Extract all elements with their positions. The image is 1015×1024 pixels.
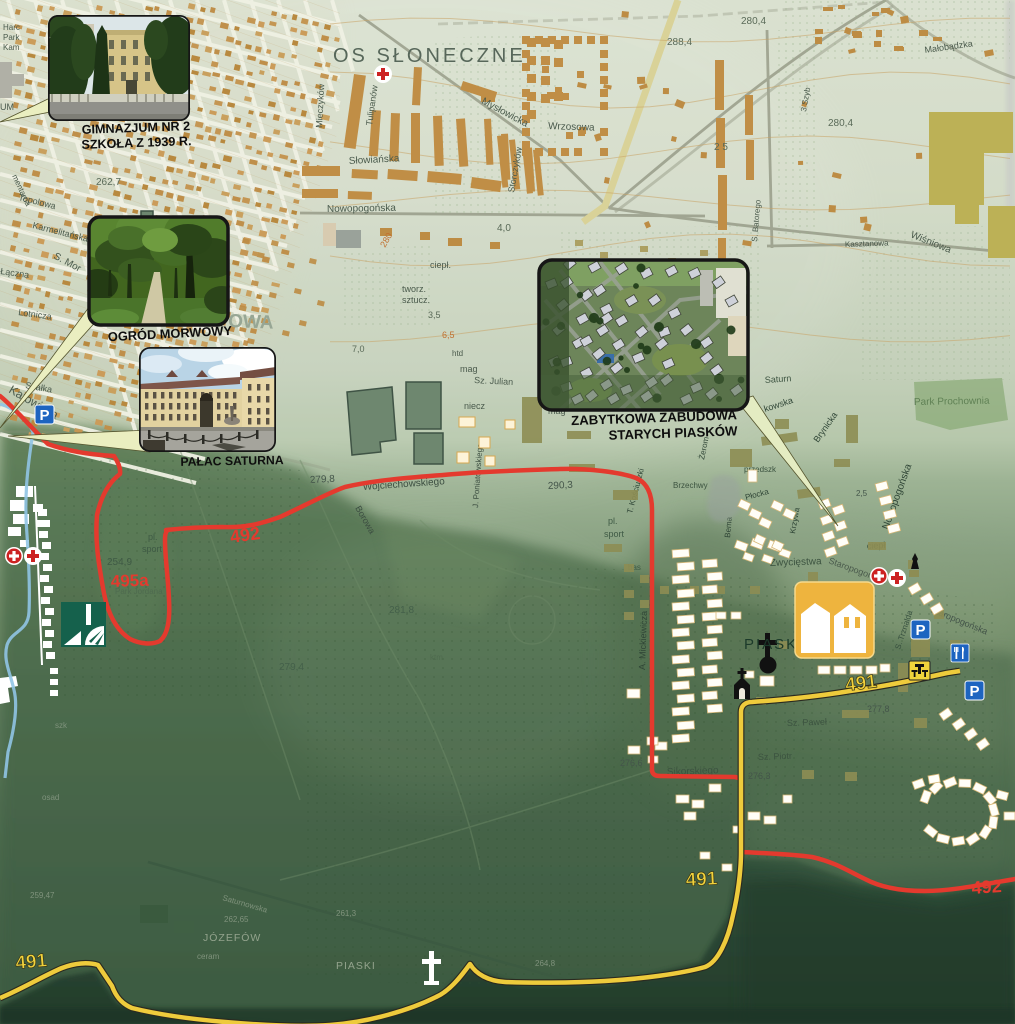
svg-text:PIASKI: PIASKI	[336, 960, 376, 972]
svg-text:264,8: 264,8	[535, 959, 556, 968]
svg-text:Harc: Harc	[3, 23, 20, 32]
svg-text:3,5: 3,5	[428, 310, 441, 320]
svg-text:ceram: ceram	[197, 952, 220, 961]
svg-text:Wrzosowa: Wrzosowa	[548, 121, 595, 134]
svg-text:262,65: 262,65	[224, 915, 249, 924]
svg-text:ktm: ktm	[430, 653, 443, 662]
svg-text:Sz. Paweł: Sz. Paweł	[787, 717, 827, 728]
svg-text:491: 491	[844, 671, 878, 696]
svg-text:7,0: 7,0	[352, 344, 365, 354]
svg-text:Park: Park	[3, 33, 20, 42]
svg-text:491: 491	[15, 950, 49, 974]
svg-text:sztucz.: sztucz.	[402, 295, 430, 305]
svg-text:niecz: niecz	[464, 401, 486, 411]
svg-text:259,47: 259,47	[30, 891, 55, 900]
svg-text:254,9: 254,9	[107, 557, 132, 568]
svg-text:P: P	[969, 683, 979, 700]
svg-text:tworz.: tworz.	[402, 284, 426, 294]
svg-text:sport: sport	[604, 529, 625, 539]
svg-text:P: P	[915, 622, 925, 639]
svg-text:492: 492	[971, 876, 1002, 898]
svg-text:276,6: 276,6	[620, 758, 643, 768]
svg-text:Nowopogońska: Nowopogońska	[327, 203, 397, 215]
svg-text:mag: mag	[460, 364, 478, 374]
svg-text:A. Mickiewicza: A. Mickiewicza	[637, 611, 649, 670]
svg-text:UM: UM	[0, 102, 14, 112]
svg-text:2 5: 2 5	[714, 142, 728, 153]
svg-text:Brzechwy: Brzechwy	[673, 481, 708, 490]
svg-text:ciepł.: ciepł.	[430, 260, 451, 270]
svg-text:280,4: 280,4	[741, 16, 766, 27]
svg-text:Kasztanowa: Kasztanowa	[845, 238, 889, 249]
svg-text:JÓZEFÓW: JÓZEFÓW	[203, 931, 261, 944]
svg-text:262,7: 262,7	[96, 177, 121, 188]
svg-text:6,5: 6,5	[442, 330, 455, 340]
svg-text:Saturn: Saturn	[764, 373, 791, 385]
svg-text:OWA: OWA	[228, 311, 274, 334]
svg-text:Sz. Piotr: Sz. Piotr	[758, 751, 792, 762]
svg-text:276,3: 276,3	[748, 771, 771, 781]
svg-text:PAŁAC SATURNA: PAŁAC SATURNA	[180, 453, 284, 469]
svg-text:492: 492	[229, 523, 262, 547]
svg-text:279,4: 279,4	[279, 662, 304, 673]
svg-text:495a: 495a	[110, 571, 149, 591]
svg-text:281,8: 281,8	[389, 605, 414, 616]
svg-text:P: P	[39, 407, 49, 424]
svg-text:279,8: 279,8	[310, 474, 336, 486]
svg-text:277,8: 277,8	[867, 704, 890, 714]
svg-text:htd: htd	[452, 349, 463, 358]
svg-text:491: 491	[685, 868, 718, 891]
svg-text:4,0: 4,0	[497, 223, 511, 234]
svg-text:pl.: pl.	[608, 516, 618, 526]
svg-text:288,4: 288,4	[667, 37, 692, 48]
svg-text:280,4: 280,4	[828, 118, 853, 129]
svg-text:2,5: 2,5	[856, 489, 868, 498]
svg-text:sport: sport	[142, 544, 163, 554]
svg-text:261,3: 261,3	[336, 909, 357, 918]
svg-text:pl.: pl.	[148, 532, 158, 542]
svg-text:osad: osad	[42, 793, 59, 802]
svg-text:Kam: Kam	[3, 43, 20, 52]
svg-text:OS SŁONECZNE: OS SŁONECZNE	[333, 45, 526, 67]
svg-text:290,3: 290,3	[548, 480, 574, 492]
svg-text:Zwycięstwa: Zwycięstwa	[770, 556, 822, 569]
svg-text:szk: szk	[55, 721, 68, 730]
svg-text:Sz. Julian: Sz. Julian	[474, 375, 514, 387]
